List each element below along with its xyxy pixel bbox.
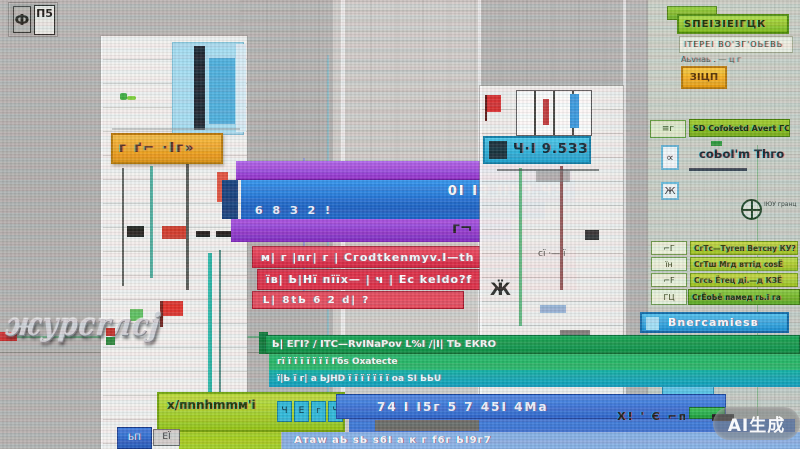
light-strip-field[interactable]: ІТЕРЕІ ВО'ЗГ'ОЬЕВЬ <box>679 36 793 53</box>
gray-chip-button[interactable]: ЕЇ <box>153 429 180 446</box>
glitch-block <box>536 170 570 182</box>
globe-icon-vline <box>751 201 753 218</box>
blue-panel-header[interactable]: Вnегсаmіеѕв <box>640 312 789 333</box>
glitch-block <box>222 180 238 219</box>
list-item[interactable]: Сгсь Ётец ді.—д КЗЁ <box>690 273 798 287</box>
logo-left-glyph: Ф <box>13 6 31 33</box>
list-icon-chip[interactable]: їн <box>651 257 687 271</box>
list-item[interactable]: СгТш Мгд вттід соѕЁ <box>690 257 798 271</box>
globe-icon[interactable] <box>741 199 762 220</box>
green-task-bar[interactable]: гї ї ї ї ї ї ї ї Гбѕ Охаtесtе <box>269 354 800 370</box>
spider-icon: Ӝ <box>490 280 510 304</box>
glitch-block <box>570 94 579 128</box>
lime-extension <box>179 432 281 449</box>
glitch-block <box>646 317 659 330</box>
teal-task-bar[interactable]: ї|Ь ї г| а ЬЈНD ї ї ї ї ї ї ї оа ЅІ ЬЬU <box>269 370 800 387</box>
globe-caption: ІЮУ гранц <box>764 201 798 217</box>
lime-task-bar-label: х/пnnhmmм'і <box>167 398 277 414</box>
bottom-toolbar-icons[interactable]: X! ' Є ⌐п <box>617 410 685 425</box>
cyan-chip[interactable]: Е <box>294 401 309 422</box>
sprout-icon-leaf <box>127 96 136 100</box>
sprout-icon <box>120 93 127 100</box>
glitch-block <box>106 328 115 336</box>
list-item[interactable]: СгТс—Тугеп Ветсну КУ? <box>690 241 798 255</box>
glitch-block <box>540 305 566 313</box>
glitch-block <box>216 231 232 237</box>
app-logo: Ф П5 <box>8 2 58 37</box>
glitch-hline <box>112 128 240 130</box>
label-underline <box>689 168 747 171</box>
flag-icon-stem <box>485 95 487 121</box>
glitch-vline <box>560 166 563 290</box>
orange-button[interactable]: ЗІЦП <box>681 66 727 89</box>
blue-chip-button[interactable]: ЬП <box>117 427 152 449</box>
glitch-block <box>236 44 246 132</box>
mini-table-grid <box>516 90 592 136</box>
bracket-glyph: г¬ <box>452 219 482 239</box>
glitch-block <box>489 141 507 159</box>
green-info-bar[interactable]: ЅD Соfоkеtd Аvеrt ГС <box>689 119 790 137</box>
cyan-header-label: Ч·І 9.5ЗЗ <box>513 142 587 160</box>
green-button[interactable]: ЅПЕІЗІЕІГЦК <box>677 14 789 34</box>
glitch-block <box>127 226 144 237</box>
cell-checkbox[interactable]: ∝ <box>661 145 679 170</box>
glitch-vline <box>519 168 522 326</box>
list-icon-chip[interactable]: ⌐F <box>651 273 687 287</box>
list-icon-chip[interactable]: ≡г <box>650 120 686 138</box>
glitch-block <box>194 46 205 130</box>
cyan-chip[interactable]: Ч <box>277 401 292 422</box>
red-task-bar[interactable]: L| 8tЬ 6 2 d| ? <box>252 291 464 309</box>
cell-checkbox[interactable]: Ж <box>661 182 679 200</box>
glitch-vline <box>186 164 189 290</box>
logo-right-glyph: П5 <box>34 5 55 35</box>
cyan-header-bar[interactable]: Ч·І 9.5ЗЗ <box>483 136 591 164</box>
gray-caption: Аьvнаь . — ц г <box>681 55 789 66</box>
glitch-block <box>543 99 549 125</box>
glitch-vline <box>150 166 153 278</box>
list-item[interactable]: СгЁоЬё памед гь.ї га <box>688 289 800 305</box>
glitch-vline <box>122 168 124 286</box>
glitch-block <box>162 226 186 239</box>
orange-task-bar[interactable]: г ґ⌐ ·Іг» <box>111 133 223 164</box>
cyan-chip[interactable]: г <box>311 401 326 422</box>
flag-icon <box>161 301 183 316</box>
progress-dark-segment <box>375 420 479 431</box>
list-icon-chip[interactable]: ⌐Г <box>651 241 687 255</box>
flag-icon <box>486 95 501 112</box>
blue-panel-title: Вnегсаmіеѕв <box>668 316 784 331</box>
glitch-block <box>196 231 210 237</box>
lime-task-bar[interactable]: х/пnnhmmм'і Ч Е г Ч <box>157 392 345 432</box>
glitch-block <box>209 58 235 124</box>
glitch-block <box>106 337 115 345</box>
green-task-bar[interactable]: Ь| ЕГІ? / ІТС—RvІNаРоv L%І /|І| ТЬ ЕКRО <box>265 335 800 354</box>
lime-chip-row: Ч Е г Ч <box>277 401 343 421</box>
glitch-block <box>585 230 599 240</box>
ai-watermark: AI生成 <box>713 407 800 440</box>
list-icon-chip[interactable]: ГЦ <box>651 289 687 305</box>
app-window: Ф П5 г ґ⌐ ·Іг» х/пnnhmmм'і Ч Е г Ч ЬП ЕЇ… <box>0 0 800 449</box>
column-label: соЬоІ'm Тhго <box>699 147 791 163</box>
glitch-block <box>711 141 722 146</box>
row-glyph: сї ·— ї <box>538 249 578 261</box>
